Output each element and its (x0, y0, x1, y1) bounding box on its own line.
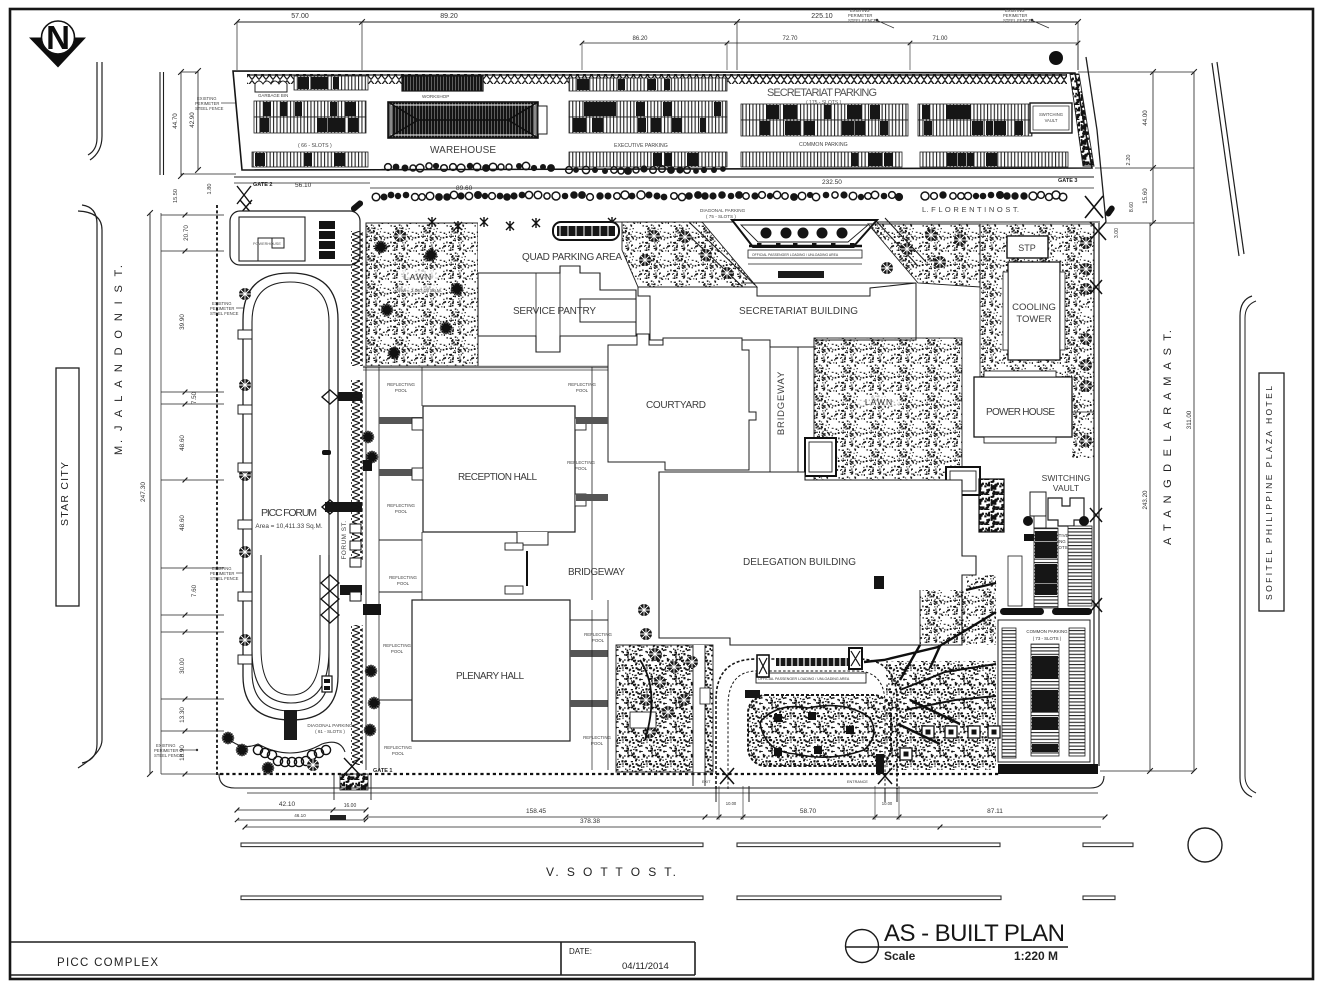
svg-text:VAULT: VAULT (1045, 118, 1058, 123)
svg-text:SERVICE PANTRY: SERVICE PANTRY (513, 306, 596, 317)
svg-text:04/11/2014: 04/11/2014 (622, 961, 669, 972)
svg-text:Scale: Scale (884, 949, 916, 963)
svg-text:RECEPTION HALL: RECEPTION HALL (458, 472, 537, 483)
svg-text:LAWN: LAWN (404, 272, 432, 282)
svg-text:225.10: 225.10 (811, 13, 833, 20)
svg-text:REFLECTING: REFLECTING (384, 745, 412, 750)
svg-text:311.00: 311.00 (1186, 410, 1193, 429)
svg-text:POOL: POOL (592, 638, 605, 643)
svg-text:ENTRANCE: ENTRANCE (847, 780, 868, 784)
svg-text:REFLECTING: REFLECTING (387, 503, 415, 508)
svg-text:VAULT: VAULT (1053, 483, 1079, 493)
svg-text:8.60: 8.60 (1129, 202, 1135, 212)
svg-text:STEEL FENCE: STEEL FENCE (210, 576, 239, 581)
svg-text:( 73 - SLOTS ): ( 73 - SLOTS ) (1033, 636, 1062, 641)
svg-text:378.38: 378.38 (580, 818, 600, 825)
svg-text:DELEGATION BUILDING: DELEGATION BUILDING (743, 557, 856, 568)
svg-text:15.50: 15.50 (173, 189, 179, 203)
svg-text:BRIDGEWAY: BRIDGEWAY (568, 567, 625, 578)
svg-text:POOL: POOL (576, 388, 589, 393)
svg-text:56.10: 56.10 (295, 182, 312, 189)
svg-text:48.60: 48.60 (179, 515, 186, 531)
svg-text:POWERHOUSE: POWERHOUSE (253, 242, 281, 246)
svg-text:7.60: 7.60 (191, 584, 198, 597)
svg-text:SECRETARIAT BUILDING: SECRETARIAT BUILDING (739, 306, 858, 317)
svg-text:COMMON PARKING: COMMON PARKING (799, 142, 848, 148)
svg-text:10.00: 10.00 (726, 801, 737, 806)
svg-text:86.20: 86.20 (632, 36, 648, 42)
svg-text:POOL: POOL (397, 581, 410, 586)
svg-text:( 66 - SLOTS ): ( 66 - SLOTS ) (298, 143, 332, 149)
svg-text:QUAD PARKING AREA: QUAD PARKING AREA (522, 252, 622, 263)
svg-text:89.60: 89.60 (456, 185, 473, 192)
svg-text:58.70: 58.70 (800, 808, 817, 815)
svg-text:WAREHOUSE: WAREHOUSE (430, 145, 496, 156)
svg-text:STEEL FENCE: STEEL FENCE (210, 311, 239, 316)
svg-text:20.70: 20.70 (183, 225, 190, 241)
svg-text:7.50: 7.50 (191, 391, 198, 404)
svg-text:OFFICIAL PASSENGER LOADING / U: OFFICIAL PASSENGER LOADING / UNLOADING A… (752, 253, 839, 257)
svg-text:N: N (46, 19, 70, 56)
svg-text:SWITCHING: SWITCHING (1042, 473, 1091, 483)
svg-text:EXIT: EXIT (702, 780, 711, 784)
svg-text:1.80: 1.80 (207, 184, 213, 195)
svg-text:GARBAGE BIN: GARBAGE BIN (258, 93, 288, 98)
svg-text:158.45: 158.45 (526, 808, 546, 815)
svg-text:2.20: 2.20 (1126, 155, 1132, 166)
svg-text:15.60: 15.60 (1142, 188, 1149, 204)
svg-text:44.70: 44.70 (172, 113, 179, 129)
svg-text:PLENARY HALL: PLENARY HALL (456, 671, 524, 682)
svg-text:STAR CITY: STAR CITY (59, 462, 71, 526)
svg-text:72.70: 72.70 (782, 36, 798, 42)
svg-text:30.00: 30.00 (179, 658, 186, 674)
svg-text:48.60: 48.60 (179, 435, 186, 451)
svg-text:SWITCHING: SWITCHING (1039, 112, 1063, 117)
svg-text:PICC FORUM: PICC FORUM (261, 507, 317, 519)
svg-text:89.20: 89.20 (440, 13, 458, 20)
svg-text:DIAGONAL PARKING: DIAGONAL PARKING (307, 723, 353, 728)
svg-text:243.20: 243.20 (1142, 490, 1149, 509)
svg-text:POOL: POOL (391, 649, 404, 654)
svg-text:SECRETARIAT PARKING: SECRETARIAT PARKING (767, 87, 877, 99)
svg-text:POOL: POOL (392, 751, 405, 756)
svg-text:13.30: 13.30 (179, 707, 186, 723)
svg-text:TOWER: TOWER (1016, 314, 1051, 325)
svg-text:GATE 2: GATE 2 (253, 182, 272, 188)
svg-text:OFFICIAL PASSENGER LOADING / U: OFFICIAL PASSENGER LOADING / UNLOADING A… (758, 677, 850, 681)
svg-text:GATE 1: GATE 1 (373, 768, 392, 774)
svg-text:STP: STP (1018, 243, 1036, 253)
svg-text:232.50: 232.50 (822, 179, 842, 186)
svg-text:44.00: 44.00 (1142, 110, 1149, 126)
svg-text:Area = 10,411.33 Sq.M.: Area = 10,411.33 Sq.M. (255, 523, 322, 530)
svg-text:REFLECTING: REFLECTING (583, 735, 611, 740)
svg-text:REFLECTING: REFLECTING (567, 460, 595, 465)
svg-text:POOL: POOL (395, 388, 408, 393)
svg-text:Area = 3,067.18 Sq.M.: Area = 3,067.18 Sq.M. (396, 288, 442, 293)
svg-text:STEEL FENCE: STEEL FENCE (154, 753, 183, 758)
svg-text:247.30: 247.30 (140, 482, 147, 502)
svg-text:COURTYARD: COURTYARD (646, 400, 706, 411)
svg-text:AS - BUILT PLAN: AS - BUILT PLAN (884, 920, 1065, 947)
svg-text:GATE 3: GATE 3 (1058, 178, 1077, 184)
svg-text:BRIDGEWAY: BRIDGEWAY (776, 371, 787, 435)
svg-text:87.11: 87.11 (987, 808, 1003, 815)
svg-text:STEEL FENCE: STEEL FENCE (195, 106, 224, 111)
svg-text:PICC COMPLEX: PICC COMPLEX (57, 957, 158, 969)
svg-text:FORUM ST.: FORUM ST. (341, 521, 348, 560)
svg-text:71.00: 71.00 (932, 36, 948, 42)
svg-text:L. F L O R E N T I N O S T.: L. F L O R E N T I N O S T. (922, 205, 1019, 214)
svg-text:COMMON PARKING: COMMON PARKING (1026, 629, 1068, 634)
svg-text:3.00: 3.00 (1114, 228, 1120, 238)
svg-text:46.10: 46.10 (294, 813, 306, 818)
svg-text:57.00: 57.00 (291, 13, 309, 20)
svg-text:POOL: POOL (395, 509, 408, 514)
svg-text:REFLECTING: REFLECTING (389, 575, 417, 580)
svg-text:( 61 - SLOTS ): ( 61 - SLOTS ) (315, 729, 345, 734)
svg-text:10.00: 10.00 (882, 801, 893, 806)
svg-text:16.00: 16.00 (344, 803, 357, 809)
svg-text:REFLECTING: REFLECTING (568, 382, 596, 387)
svg-text:LAWN: LAWN (865, 397, 893, 407)
svg-text:REFLECTING: REFLECTING (383, 643, 411, 648)
svg-text:POWER HOUSE: POWER HOUSE (986, 407, 1055, 418)
svg-text:DIAGONAL PARKING: DIAGONAL PARKING (700, 208, 746, 213)
svg-text:POOL: POOL (575, 466, 588, 471)
svg-text:POOL: POOL (591, 741, 604, 746)
svg-text:STEEL FENCE: STEEL FENCE (848, 18, 877, 23)
svg-text:42.90: 42.90 (189, 112, 196, 128)
svg-text:EXECUTIVE PARKING: EXECUTIVE PARKING (614, 143, 668, 149)
svg-text:39.90: 39.90 (179, 314, 186, 330)
svg-text:REFLECTING: REFLECTING (387, 382, 415, 387)
svg-text:COOLING: COOLING (1012, 302, 1056, 313)
svg-text:STEEL FENCE: STEEL FENCE (1003, 18, 1032, 23)
svg-text:( 75 - SLOTS ): ( 75 - SLOTS ) (706, 214, 736, 219)
svg-text:WORKSHOP: WORKSHOP (422, 94, 449, 99)
svg-text:1:220 M: 1:220 M (1014, 949, 1058, 963)
svg-text:DATE:: DATE: (569, 947, 592, 956)
svg-text:42.10: 42.10 (279, 801, 296, 808)
